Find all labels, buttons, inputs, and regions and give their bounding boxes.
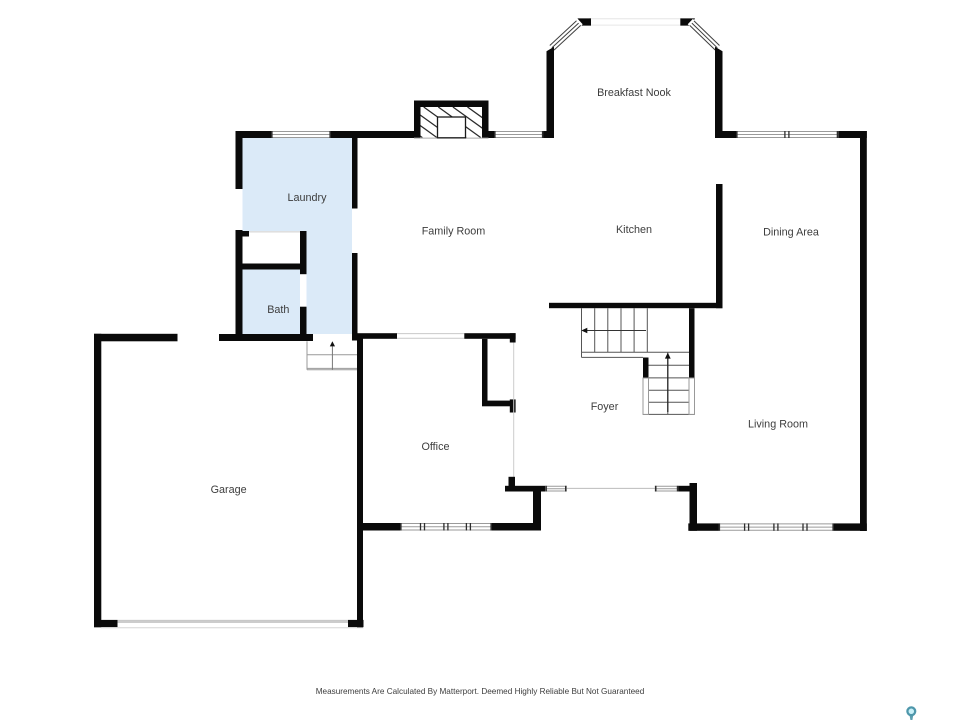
svg-text:Living Room: Living Room bbox=[748, 419, 808, 431]
svg-text:Family Room: Family Room bbox=[422, 226, 486, 238]
svg-text:Breakfast Nook: Breakfast Nook bbox=[597, 87, 671, 99]
svg-text:Office: Office bbox=[421, 441, 449, 453]
svg-text:Foyer: Foyer bbox=[591, 401, 619, 413]
svg-text:Laundry: Laundry bbox=[287, 192, 327, 204]
svg-text:Kitchen: Kitchen bbox=[616, 224, 652, 236]
svg-text:Measurements Are Calculated By: Measurements Are Calculated By Matterpor… bbox=[316, 687, 645, 696]
svg-text:Dining Area: Dining Area bbox=[763, 226, 819, 238]
svg-text:Garage: Garage bbox=[211, 484, 247, 496]
svg-text:Bath: Bath bbox=[267, 304, 289, 316]
